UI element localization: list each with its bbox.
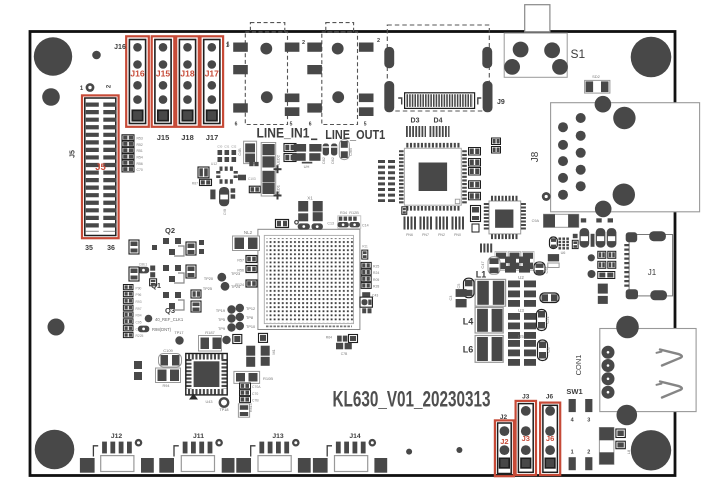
- svg-text:TP18: TP18: [219, 408, 228, 412]
- svg-text:U6: U6: [561, 251, 566, 255]
- svg-text:C9A: C9A: [532, 219, 540, 223]
- svg-text:TP8: TP8: [246, 316, 253, 320]
- svg-text:C9B: C9B: [348, 148, 353, 156]
- svg-text:R97: R97: [136, 307, 142, 311]
- svg-text:Q1: Q1: [151, 281, 161, 290]
- svg-text:LINE_IN1: LINE_IN1: [257, 126, 310, 141]
- svg-text:3: 3: [587, 418, 590, 424]
- svg-text:Q2: Q2: [165, 226, 175, 235]
- svg-text:C103: C103: [248, 177, 256, 181]
- svg-text:D4: D4: [434, 118, 443, 125]
- svg-text:C31: C31: [224, 145, 230, 149]
- svg-text:PN7: PN7: [422, 233, 429, 237]
- svg-text:S1: S1: [571, 47, 586, 61]
- svg-text:C8E1: C8E1: [139, 263, 148, 267]
- svg-text:R51: R51: [137, 149, 143, 153]
- svg-text:L4: L4: [463, 317, 474, 327]
- svg-text:TP20: TP20: [204, 277, 213, 281]
- svg-text:2: 2: [302, 40, 305, 46]
- svg-text:KL630_V01_20230313: KL630_V01_20230313: [333, 387, 491, 412]
- svg-text:UH: UH: [304, 164, 310, 169]
- svg-text:L8: L8: [626, 449, 631, 454]
- svg-text:LINE_OUT1: LINE_OUT1: [325, 127, 385, 142]
- svg-text:J16: J16: [114, 44, 126, 51]
- svg-text:R94: R94: [136, 314, 142, 318]
- svg-text:C32: C32: [231, 145, 237, 149]
- svg-text:C14: C14: [362, 224, 369, 228]
- svg-text:C70A: C70A: [252, 385, 261, 389]
- svg-text:L1: L1: [476, 270, 487, 280]
- svg-text:35: 35: [85, 245, 93, 252]
- svg-text:TP23: TP23: [231, 272, 240, 276]
- svg-text:SD2: SD2: [592, 74, 601, 79]
- svg-text:R813: R813: [249, 403, 253, 412]
- svg-text:J6: J6: [546, 434, 554, 443]
- svg-text:P96: P96: [136, 293, 142, 297]
- svg-text:R25: R25: [373, 264, 379, 268]
- svg-text:R93: R93: [136, 300, 142, 304]
- svg-text:R24: R24: [373, 271, 379, 275]
- svg-text:C30: C30: [217, 145, 223, 149]
- svg-text:J5: J5: [95, 162, 106, 173]
- svg-text:J11: J11: [193, 433, 204, 440]
- svg-text:C9B: C9B: [223, 209, 227, 215]
- svg-text:D62: D62: [331, 157, 335, 164]
- svg-text:C5: C5: [457, 284, 461, 289]
- svg-text:TP19: TP19: [216, 309, 225, 313]
- svg-text:C6: C6: [546, 347, 551, 353]
- svg-text:C95: C95: [136, 321, 142, 325]
- svg-text:R225: R225: [136, 334, 144, 338]
- svg-text:J8: J8: [530, 151, 541, 162]
- svg-text:R28: R28: [373, 285, 379, 289]
- svg-text:C109: C109: [163, 348, 173, 353]
- svg-text:R10B: R10B: [263, 376, 273, 381]
- svg-text:PN6: PN6: [406, 233, 413, 237]
- svg-text:PN0: PN0: [454, 233, 461, 237]
- svg-text:J2: J2: [500, 437, 508, 446]
- svg-text:R187: R187: [205, 330, 215, 335]
- svg-text:C7B: C7B: [252, 399, 259, 403]
- svg-text:R56: R56: [137, 162, 143, 166]
- svg-text:R64: R64: [326, 336, 332, 340]
- svg-text:J13: J13: [272, 433, 284, 440]
- svg-text:C47: C47: [480, 261, 485, 269]
- svg-text:J3: J3: [522, 394, 530, 401]
- svg-text:R52: R52: [137, 143, 143, 147]
- svg-text:J6: J6: [546, 394, 554, 401]
- svg-text:R53: R53: [137, 137, 143, 141]
- svg-text:C70: C70: [137, 168, 143, 172]
- svg-text:J14: J14: [349, 433, 361, 440]
- svg-text:TP12: TP12: [246, 307, 255, 311]
- svg-text:P90: P90: [136, 286, 142, 290]
- svg-text:D3: D3: [411, 118, 420, 125]
- svg-text:TP5: TP5: [218, 318, 225, 322]
- svg-text:2: 2: [377, 38, 380, 44]
- svg-text:R12B: R12B: [349, 211, 359, 215]
- svg-text:C21: C21: [545, 316, 550, 324]
- svg-text:TP10: TP10: [246, 325, 255, 329]
- svg-text:TP25: TP25: [203, 287, 212, 291]
- svg-text:U3: U3: [518, 308, 524, 313]
- svg-text:TP24: TP24: [231, 285, 240, 289]
- svg-text:J12: J12: [111, 433, 123, 440]
- svg-text:36: 36: [107, 245, 115, 252]
- svg-text:J1: J1: [648, 268, 657, 277]
- svg-text:J17: J17: [206, 133, 219, 142]
- svg-text:LED2: LED2: [276, 154, 281, 165]
- svg-text:U2: U2: [518, 275, 524, 280]
- svg-text:J16: J16: [130, 69, 144, 79]
- svg-text:R11: R11: [362, 245, 368, 249]
- svg-text:J5: J5: [70, 150, 77, 158]
- svg-text:1: 1: [226, 42, 229, 48]
- svg-text:U12: U12: [211, 162, 217, 166]
- svg-text:CON1: CON1: [574, 355, 583, 376]
- svg-text:PN2: PN2: [438, 233, 445, 237]
- svg-text:J15: J15: [156, 69, 170, 79]
- svg-text:X1: X1: [307, 196, 313, 201]
- svg-text:J3: J3: [522, 434, 530, 443]
- svg-text:R54: R54: [137, 156, 143, 160]
- svg-text:2: 2: [587, 450, 590, 456]
- svg-text:R05: R05: [373, 278, 379, 282]
- svg-text:C4B: C4B: [238, 148, 242, 156]
- svg-text:M1: M1: [271, 348, 276, 354]
- svg-text:L6: L6: [463, 345, 474, 355]
- svg-text:R57: R57: [237, 259, 244, 263]
- svg-text:R87: R87: [192, 182, 198, 186]
- svg-text:C7B: C7B: [341, 352, 348, 356]
- svg-text:D82: D82: [322, 157, 326, 164]
- svg-text:R94: R94: [163, 384, 170, 388]
- svg-text:R34: R34: [340, 211, 347, 215]
- svg-text:J9: J9: [497, 99, 505, 106]
- svg-text:R98(DNT): R98(DNT): [152, 327, 172, 332]
- svg-text:40_REF_CLK1: 40_REF_CLK1: [155, 317, 184, 322]
- svg-text:J18: J18: [181, 133, 194, 142]
- svg-text:C43: C43: [372, 294, 378, 298]
- svg-text:6: 6: [235, 122, 238, 128]
- svg-text:C13: C13: [327, 222, 334, 226]
- svg-text:C3: C3: [449, 296, 453, 301]
- svg-text:J15: J15: [157, 133, 170, 142]
- svg-text:C70: C70: [252, 392, 258, 396]
- svg-text:1: 1: [571, 450, 574, 456]
- svg-text:U43: U43: [206, 400, 213, 404]
- svg-text:U5: U5: [518, 334, 524, 339]
- svg-text:TP9: TP9: [218, 327, 225, 331]
- svg-text:J17: J17: [205, 69, 219, 79]
- svg-text:J18: J18: [180, 69, 194, 79]
- svg-text:TP17: TP17: [174, 331, 183, 335]
- svg-text:NL2: NL2: [244, 230, 253, 235]
- svg-text:SW1: SW1: [566, 387, 582, 396]
